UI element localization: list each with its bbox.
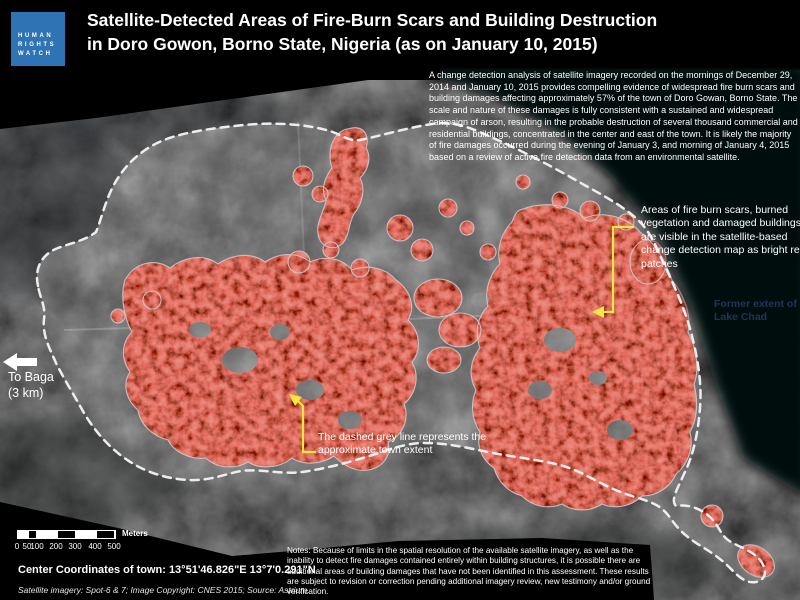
notes-paragraph: Notes: Because of limits in the spatial … bbox=[287, 546, 655, 597]
title-line-1: Satellite-Detected Areas of Fire-Burn Sc… bbox=[87, 9, 657, 33]
lake-chad-label: Former extent of Lake Chad bbox=[714, 298, 797, 324]
imagery-credit: Satellite imagery: Spot-6 & 7; Image Cop… bbox=[18, 585, 310, 595]
intro-paragraph: A change detection analysis of satellite… bbox=[429, 70, 799, 164]
scale-tick: 400 bbox=[88, 542, 101, 551]
logo-line: HUMAN bbox=[18, 32, 65, 41]
to-baga-label: To Baga (3 km) bbox=[8, 370, 54, 401]
fire-scars-callout: Areas of fire burn scars, burned vegetat… bbox=[641, 204, 800, 271]
center-coordinates: Center Coordinates of town: 13°51'46.826… bbox=[18, 564, 316, 576]
scale-bar bbox=[17, 530, 116, 539]
scale-tick: 300 bbox=[68, 542, 81, 551]
scale-bar-unit: Meters bbox=[122, 529, 148, 538]
hrw-logo: HUMAN RIGHTS WATCH bbox=[11, 12, 65, 66]
title-line-2: in Doro Gowon, Borno State, Nigeria (as … bbox=[87, 33, 657, 57]
town-extent-callout: The dashed grey line represents the appr… bbox=[318, 431, 490, 458]
page-title: Satellite-Detected Areas of Fire-Burn Sc… bbox=[87, 9, 657, 56]
header: HUMAN RIGHTS WATCH Satellite-Detected Ar… bbox=[0, 0, 800, 68]
scale-tick: 100 bbox=[30, 542, 43, 551]
scale-tick: 0 bbox=[15, 542, 19, 551]
logo-line: RIGHTS bbox=[18, 41, 65, 50]
scale-tick: 200 bbox=[49, 542, 62, 551]
scale-tick: 500 bbox=[107, 542, 120, 551]
logo-line: WATCH bbox=[18, 50, 65, 59]
